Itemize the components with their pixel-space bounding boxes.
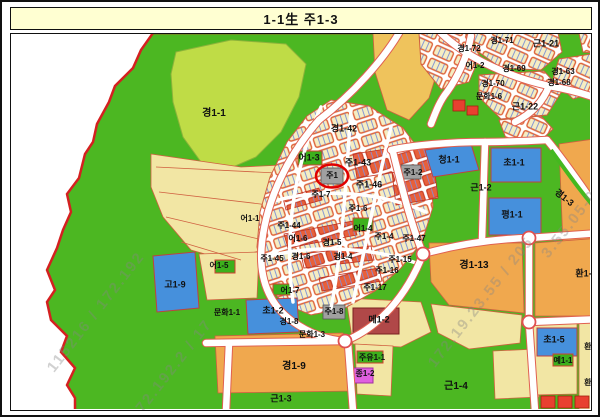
map-canvas xyxy=(11,34,590,409)
map-title-bar: 1-1生 주1-3 xyxy=(10,7,592,30)
map-screenshot: 1-1生 주1-3 xyxy=(0,0,600,417)
highlight-parcel xyxy=(316,165,348,188)
map-title: 1-1生 주1-3 xyxy=(263,9,338,28)
map-viewport: 경1-1경1-42주1-43어1-3주1주1-46주1-2청1-1초1-1근1-… xyxy=(10,33,592,411)
